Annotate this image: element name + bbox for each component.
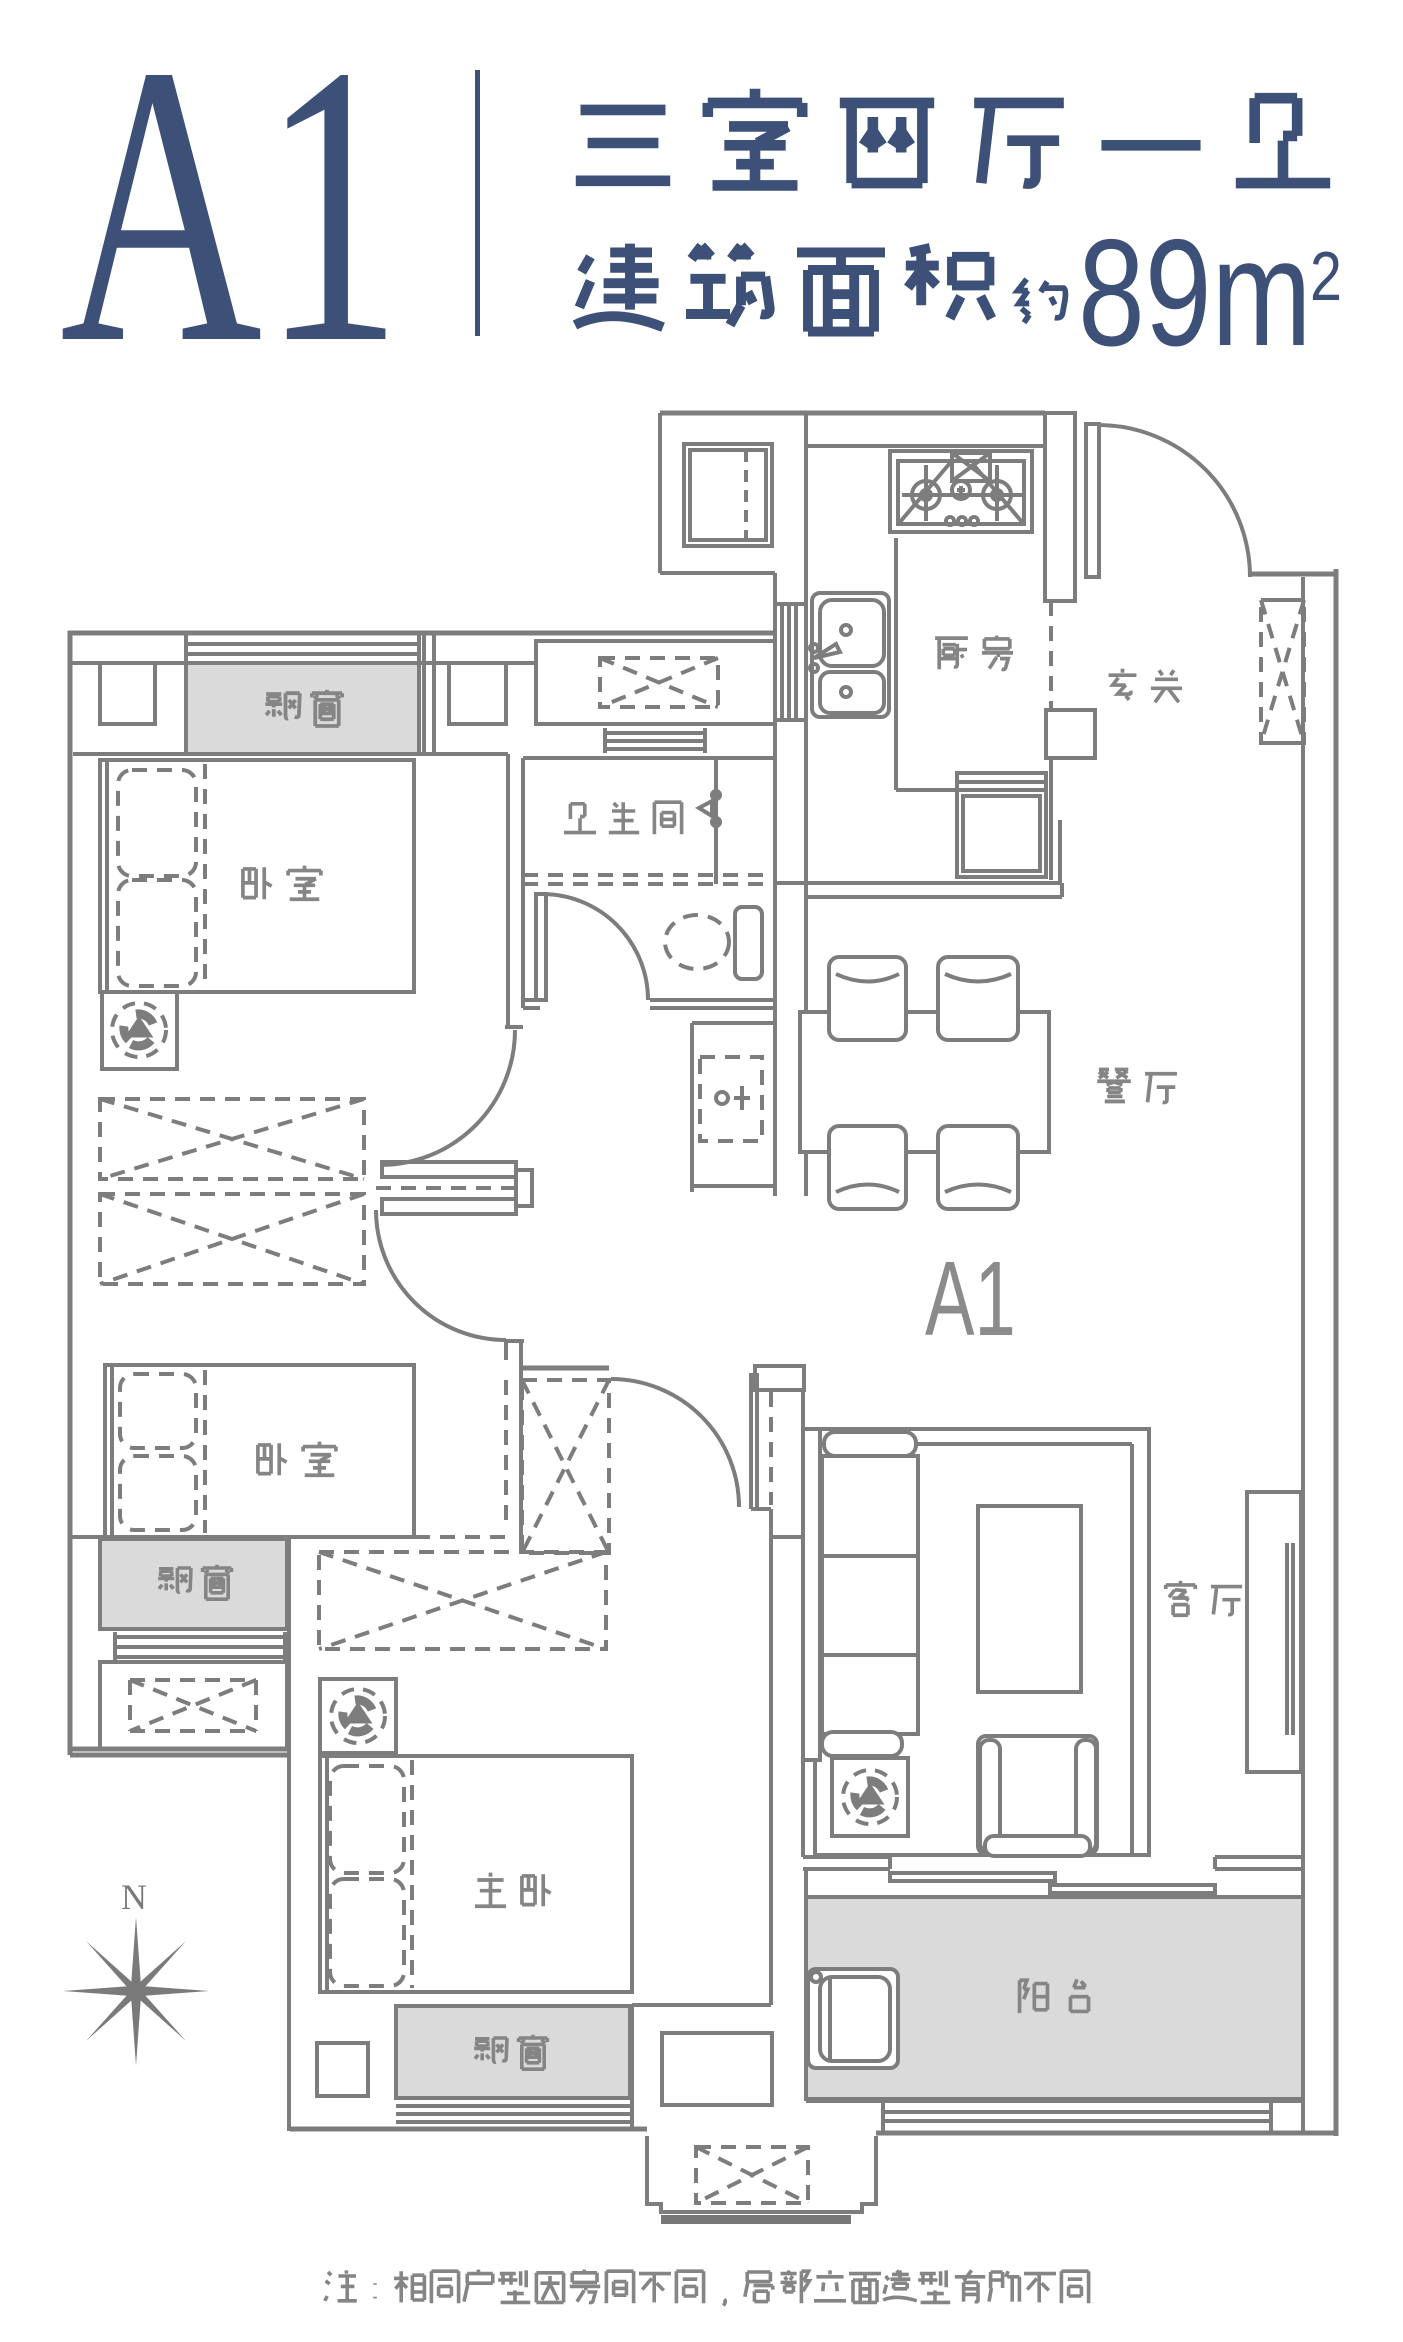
svg-text:2: 2 — [1310, 237, 1342, 316]
svg-text:N: N — [121, 1877, 147, 1917]
svg-text:89m: 89m — [1078, 209, 1312, 379]
svg-text:A1: A1 — [60, 0, 402, 426]
svg-text:A1: A1 — [925, 1240, 1016, 1358]
